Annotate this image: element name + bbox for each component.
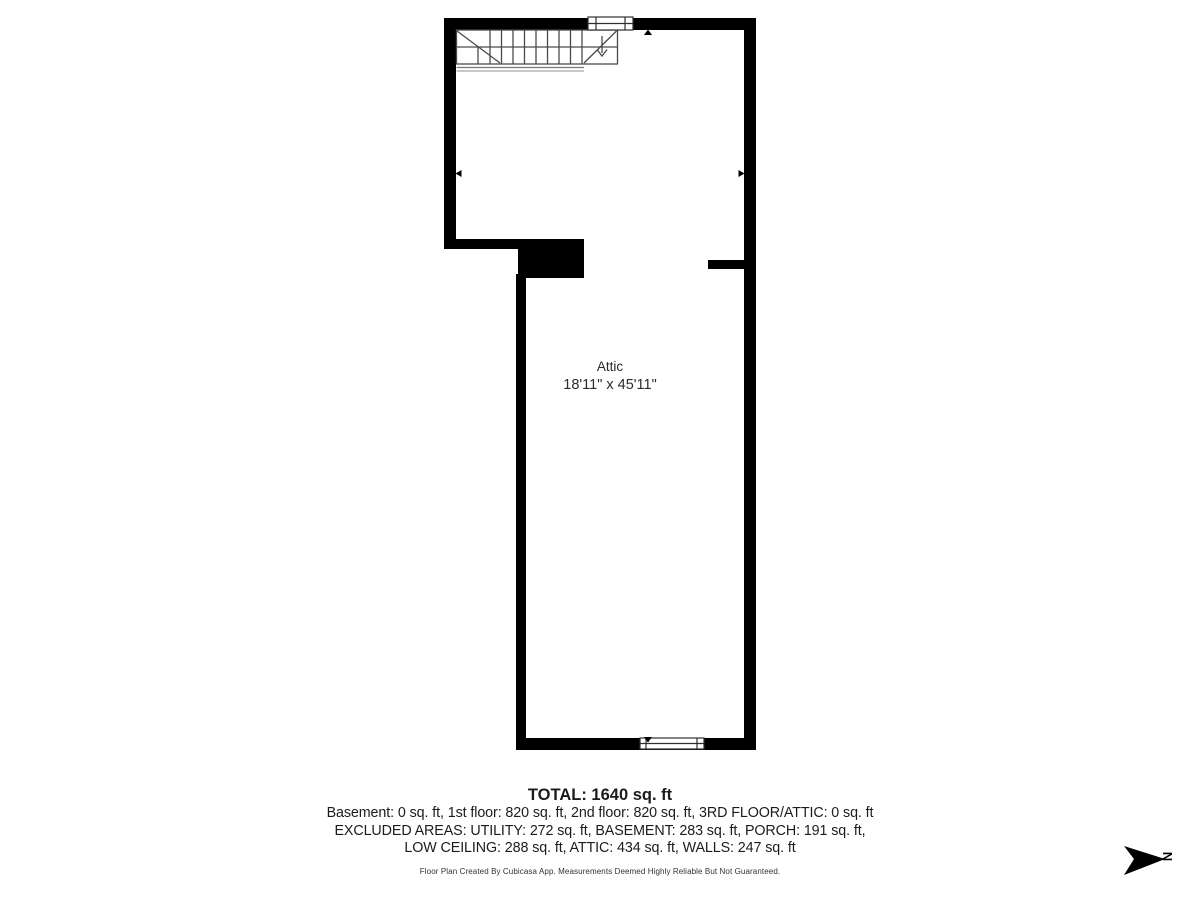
wall-upper-room-bottom	[444, 239, 520, 249]
wall-marker-right-icon	[739, 170, 745, 177]
disclaimer: Floor Plan Created By Cubicasa App. Meas…	[0, 867, 1200, 876]
floor-areas: Basement: 0 sq. ft, 1st floor: 820 sq. f…	[0, 805, 1200, 823]
room-dimensions: 18'11" x 45'11"	[563, 377, 657, 393]
wall-left-upper	[444, 18, 456, 249]
floorplan-drawing: Attic 18'11" x 45'11"	[0, 0, 1200, 900]
chimney-mass	[518, 239, 584, 278]
stair-direction-arrow-icon	[597, 36, 607, 56]
north-label: N	[1160, 852, 1175, 861]
excluded-areas-line2: LOW CEILING: 288 sq. ft, ATTIC: 434 sq. …	[0, 840, 1200, 858]
area-summary: TOTAL: 1640 sq. ft Basement: 0 sq. ft, 1…	[0, 786, 1200, 876]
window-top	[588, 17, 633, 30]
total-area: TOTAL: 1640 sq. ft	[0, 786, 1200, 805]
wall-marker-left-icon	[456, 170, 462, 177]
compass: N	[1120, 843, 1190, 883]
floorplan-page: Attic 18'11" x 45'11" TOTAL: 1640 sq. ft…	[0, 0, 1200, 900]
excluded-areas-line1: EXCLUDED AREAS: UTILITY: 272 sq. ft, BAS…	[0, 823, 1200, 841]
entry-marker-top-icon	[644, 30, 652, 36]
wall-right	[744, 18, 756, 750]
wall-bottom	[516, 738, 756, 750]
staircase	[457, 30, 618, 71]
wall-right-stub	[708, 260, 744, 269]
room-label: Attic	[597, 359, 624, 374]
wall-left-lower	[516, 274, 526, 750]
